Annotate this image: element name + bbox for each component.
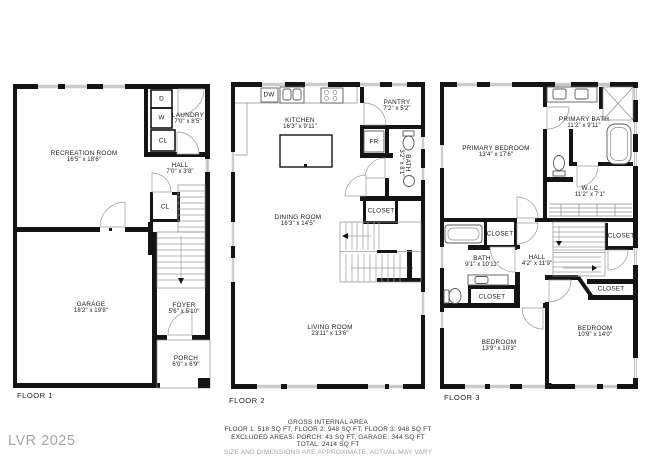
closet2-label-f1: CL <box>161 203 170 210</box>
bath3-vanity <box>468 275 508 285</box>
floor3-tag: FLOOR 3 <box>444 393 480 402</box>
footer-line-floors: FLOOR 1: 518 SQ FT, FLOOR 2: 948 SQ FT, … <box>163 426 493 433</box>
room-label-bedroom-left: BEDROOM 13'9" x 10'3" <box>482 339 517 353</box>
room-label-primary-bath: PRIMARY BATH 11'2" x 9'11" <box>559 116 609 130</box>
room-label-kitchen: KITCHEN 16'3" x 9'11" <box>283 117 317 131</box>
footer-line-total: TOTAL: 2414 SQ FT <box>163 441 493 448</box>
washer-label: W <box>158 114 164 121</box>
wic-shelves <box>549 204 632 216</box>
bath2-sink <box>404 176 415 187</box>
closet1-door-arc <box>177 132 199 154</box>
floor1-walls <box>13 84 210 388</box>
watermark: LVR 2025 <box>8 433 75 449</box>
shower <box>599 87 633 120</box>
closet2-box <box>150 173 180 222</box>
wic-door-arc <box>577 166 598 187</box>
floor2-tag: FLOOR 2 <box>229 396 265 405</box>
footer-line-disclaimer: SIZE AND DIMENSIONS ARE APPROXIMATE, ACT… <box>163 449 493 456</box>
bath3-toilet <box>444 289 461 304</box>
floor2-walls <box>231 82 425 389</box>
closet-b-label: CLOSET <box>608 232 635 239</box>
room-label-hall-f3: HALL 4'2" x 11'9" <box>522 254 552 268</box>
closet-b-door-arc <box>608 250 628 270</box>
rec-room-door-arc <box>100 202 125 227</box>
area-summary: GROSS INTERNAL AREA FLOOR 1: 518 SQ FT, … <box>163 419 493 456</box>
room-label-bath-f3: BATH 9'1" x 10'11" <box>465 255 499 269</box>
staircase <box>157 185 205 288</box>
bedroom-left-door-arc <box>522 308 543 329</box>
footer-line-excluded: EXCLUDED AREAS: PORCH: 43 SQ FT, GARAGE:… <box>163 434 493 441</box>
bath3-tub <box>445 225 482 243</box>
floor2-plan-drawing <box>225 78 430 400</box>
closet2-door-arc <box>345 175 366 196</box>
toilet <box>403 131 414 150</box>
room-label-living-room: LIVING ROOM 23'11" x 13'6" <box>307 324 352 338</box>
room-label-porch: PORCH 6'0" x 6'9" <box>172 355 199 369</box>
fridge-label: FR <box>370 138 379 145</box>
floor-plan-canvas: RECREATION ROOM 16'5" x 18'6" LAUNDRY 7'… <box>0 0 650 459</box>
closet-c-label: CLOSET <box>479 293 506 300</box>
footer-line-title: GROSS INTERNAL AREA <box>163 419 493 426</box>
staircase <box>553 222 605 276</box>
room-label-dining-room: DINING ROOM 16'3" x 14'5" <box>275 214 322 228</box>
closet-a-label: CLOSET <box>487 230 514 237</box>
pbed-door-arc <box>517 197 538 218</box>
room-label-primary-bedroom: PRIMARY BEDROOM 13'4" x 17'6" <box>462 145 529 159</box>
pbath-vanity <box>547 87 597 102</box>
room-label-garage: GARAGE 18'2" x 19'8" <box>74 301 108 315</box>
kitchen-island <box>280 135 332 167</box>
bedroom-right-door-arc <box>549 280 571 302</box>
closet-a-door-arc <box>517 223 538 244</box>
room-label-bedroom-right: BEDROOM 10'9" x 14'0" <box>578 325 613 339</box>
room-label-hall-f1: HALL 7'0" x 3'8" <box>166 162 193 176</box>
floor1-tag: FLOOR 1 <box>17 391 53 400</box>
closet1-label-f1: CL <box>159 137 168 144</box>
kitchen-sink <box>280 87 304 103</box>
stove <box>321 88 343 103</box>
closet-label-f2: CLOSET <box>368 207 395 214</box>
room-label-foyer: FOYER 5'6" x 5'10" <box>169 302 200 316</box>
room-label-recreation-room: RECREATION ROOM 16'5" x 18'6" <box>51 150 118 164</box>
dryer-label: D <box>159 95 164 102</box>
closet-d-label: CLOSET <box>598 285 625 292</box>
pbath-tub <box>607 124 631 164</box>
dishwasher-label: DW <box>263 91 274 98</box>
room-label-pantry: PANTRY 7'2" x 5'2" <box>383 99 410 113</box>
bath2-door-arc <box>365 158 385 178</box>
room-label-laundry: LAUNDRY 7'0" x 8'5" <box>172 112 204 126</box>
pbath-toilet <box>553 156 565 177</box>
room-label-wic: W.I.C 11'2" x 7'1" <box>575 185 605 199</box>
room-label-bath-f2: BATH 3'2" x 8'1" <box>397 149 411 176</box>
